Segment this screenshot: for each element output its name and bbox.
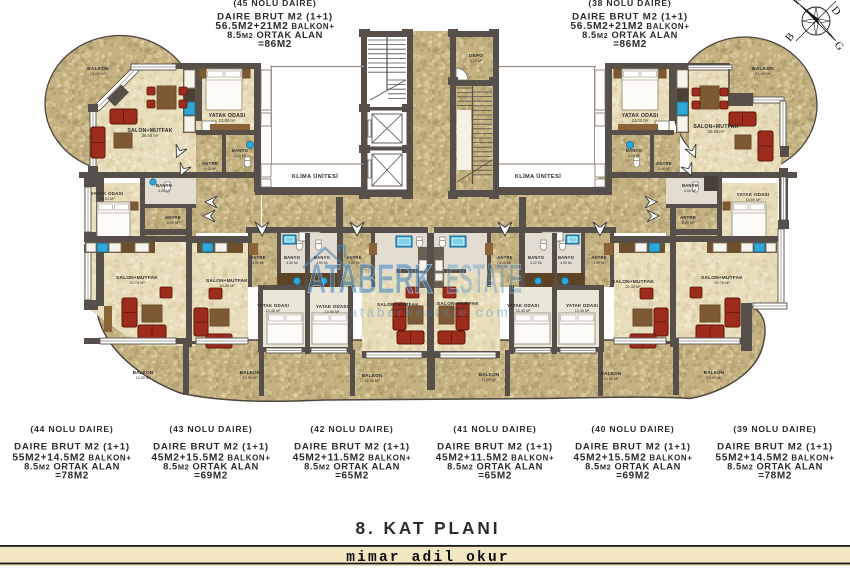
svg-text:4.45 M²: 4.45 M² <box>658 167 672 171</box>
svg-text:mimar adil okur: mimar adil okur <box>346 550 510 566</box>
svg-text:BANYO: BANYO <box>314 255 331 260</box>
svg-text:4.00 M²: 4.00 M² <box>158 189 171 193</box>
svg-text:4.20 M²: 4.20 M² <box>234 154 247 158</box>
svg-text:BALKON: BALKON <box>133 370 154 375</box>
svg-text:20.35 M²: 20.35 M² <box>625 284 641 289</box>
svg-text:BANYO: BANYO <box>682 183 699 188</box>
svg-text:13.52 M²: 13.52 M² <box>243 376 259 380</box>
svg-text:BANYO: BANYO <box>558 255 575 260</box>
svg-text:(40 NOLU DAIRE): (40 NOLU DAIRE) <box>591 424 674 434</box>
svg-text:4.04 M²: 4.04 M² <box>684 189 697 193</box>
svg-text:YATAK ODASI: YATAK ODASI <box>257 303 289 308</box>
svg-text:4.00 M²: 4.00 M² <box>252 261 265 265</box>
svg-text:4.20 M²: 4.20 M² <box>348 261 361 265</box>
svg-text:ANTRE: ANTRE <box>591 255 606 260</box>
svg-text:(38 NOLU DAIRE): (38 NOLU DAIRE) <box>588 0 671 8</box>
svg-text:=65M2: =65M2 <box>478 471 512 482</box>
svg-text:YATAK ODASI: YATAK ODASI <box>316 304 348 309</box>
svg-text:20.35 M²: 20.35 M² <box>390 307 406 312</box>
svg-text:=78M2: =78M2 <box>758 471 792 482</box>
svg-text:=65M2: =65M2 <box>335 471 369 482</box>
svg-text:DAIRE BRUT M2 (1+1): DAIRE BRUT M2 (1+1) <box>717 442 833 453</box>
svg-text:10.45 M²: 10.45 M² <box>266 309 281 313</box>
svg-text:DAIRE BRUT M2 (1+1): DAIRE BRUT M2 (1+1) <box>294 442 410 453</box>
svg-text:11.50 M²: 11.50 M² <box>482 378 497 382</box>
svg-text:20.35 M²: 20.35 M² <box>219 283 235 288</box>
svg-text:BANYO: BANYO <box>284 255 301 260</box>
svg-text:21.00 M²: 21.00 M² <box>90 71 106 76</box>
svg-text:BALKON: BALKON <box>240 370 261 375</box>
svg-text:4.20 M²: 4.20 M² <box>499 261 512 265</box>
svg-text:13.00 m²: 13.00 m² <box>632 118 649 123</box>
svg-text:(41 NOLU DAIRE): (41 NOLU DAIRE) <box>453 424 536 434</box>
svg-text:4.02 M²: 4.02 M² <box>530 261 543 265</box>
svg-text:BALKON: BALKON <box>704 370 725 375</box>
svg-text:=86M2: =86M2 <box>613 39 647 50</box>
svg-text:(39 NOLU DAIRE): (39 NOLU DAIRE) <box>733 424 816 434</box>
svg-text:BANYO: BANYO <box>528 255 545 260</box>
svg-text:ANTRE: ANTRE <box>656 161 672 166</box>
svg-text:11.50 M²: 11.50 M² <box>365 379 380 383</box>
svg-text:10.45 M²: 10.45 M² <box>516 309 531 313</box>
svg-text:26.50 m²: 26.50 m² <box>708 129 725 134</box>
svg-text:ANTRE: ANTRE <box>680 215 696 220</box>
svg-text:ANTRE: ANTRE <box>202 161 218 166</box>
svg-text:ANTRE: ANTRE <box>346 255 361 260</box>
svg-text:14.30 M²: 14.30 M² <box>136 376 152 380</box>
svg-text:DAIRE BRUT M2 (1+1): DAIRE BRUT M2 (1+1) <box>575 442 691 453</box>
svg-text:25.75 M²: 25.75 M² <box>714 280 730 285</box>
svg-text:=69M2: =69M2 <box>194 471 228 482</box>
svg-text:(42 NOLU DAIRE): (42 NOLU DAIRE) <box>310 424 393 434</box>
svg-text:YATAK ODASI: YATAK ODASI <box>737 192 770 197</box>
svg-text:26.50 m²: 26.50 m² <box>142 133 159 138</box>
svg-text:4.00 M²: 4.00 M² <box>316 261 329 265</box>
svg-text:8. KAT PLANI: 8. KAT PLANI <box>356 518 501 538</box>
svg-text:4.20 M²: 4.20 M² <box>628 154 641 158</box>
svg-text:BANYO: BANYO <box>626 148 643 153</box>
svg-text:4.20 M²: 4.20 M² <box>470 59 484 63</box>
svg-text:5.00 M²: 5.00 M² <box>682 221 696 225</box>
svg-text:4.00 M²: 4.00 M² <box>560 261 573 265</box>
svg-text:(45 NOLU DAIRE): (45 NOLU DAIRE) <box>233 0 316 8</box>
svg-text:DAIRE BRUT M2 (1+1): DAIRE BRUT M2 (1+1) <box>437 442 553 453</box>
svg-text:4.00 M²: 4.00 M² <box>286 261 299 265</box>
svg-text:=78M2: =78M2 <box>55 471 89 482</box>
svg-text:BALKON: BALKON <box>479 372 500 377</box>
svg-text:BANYO: BANYO <box>232 148 249 153</box>
svg-text:DAIRE BRUT M2 (1+1): DAIRE BRUT M2 (1+1) <box>153 442 269 453</box>
svg-text:KLİMA ÜNİTESİ: KLİMA ÜNİTESİ <box>292 173 338 180</box>
svg-text:ANTRE: ANTRE <box>250 255 265 260</box>
svg-text:ANTRE: ANTRE <box>497 255 512 260</box>
svg-text:13.60 M²: 13.60 M² <box>604 377 620 381</box>
svg-text:BANYO: BANYO <box>156 183 173 188</box>
svg-text:14.60 M²: 14.60 M² <box>707 376 723 380</box>
svg-text:=86M2: =86M2 <box>258 39 292 50</box>
svg-text:YATAK ODASI: YATAK ODASI <box>566 303 598 308</box>
svg-text:BALKON: BALKON <box>601 371 622 376</box>
svg-text:ANTRE: ANTRE <box>165 215 181 220</box>
svg-text:10.45 M²: 10.45 M² <box>575 309 590 313</box>
svg-text:DEPO: DEPO <box>469 53 483 59</box>
svg-text:5.00 M²: 5.00 M² <box>167 221 181 225</box>
svg-text:10.90 M²: 10.90 M² <box>100 197 116 201</box>
svg-text:BALKON: BALKON <box>362 373 383 378</box>
svg-text:YATAK ODASI: YATAK ODASI <box>507 303 539 308</box>
svg-text:4.45 M²: 4.45 M² <box>204 167 218 171</box>
svg-text:21.00 M²: 21.00 M² <box>755 71 771 76</box>
svg-text:20.75 M²: 20.75 M² <box>129 280 145 285</box>
svg-text:YATAK ODASI: YATAK ODASI <box>91 191 124 196</box>
svg-text:(44 NOLU DAIRE): (44 NOLU DAIRE) <box>30 424 113 434</box>
svg-text:4.00 M²: 4.00 M² <box>593 261 606 265</box>
svg-text:(43 NOLU DAIRE): (43 NOLU DAIRE) <box>169 424 252 434</box>
svg-text:KLİMA ÜNİTESİ: KLİMA ÜNİTESİ <box>515 173 561 180</box>
svg-text:13.00 m²: 13.00 m² <box>219 118 236 123</box>
svg-text:20.35 M²: 20.35 M² <box>450 306 466 311</box>
svg-text:ataberkestate com: ataberkestate com <box>349 305 510 320</box>
svg-text:DAIRE BRUT M2 (1+1): DAIRE BRUT M2 (1+1) <box>14 442 130 453</box>
svg-text:10.65 M²: 10.65 M² <box>325 310 340 314</box>
svg-text:13.60 M²: 13.60 M² <box>746 198 762 202</box>
svg-text:=69M2: =69M2 <box>616 471 650 482</box>
